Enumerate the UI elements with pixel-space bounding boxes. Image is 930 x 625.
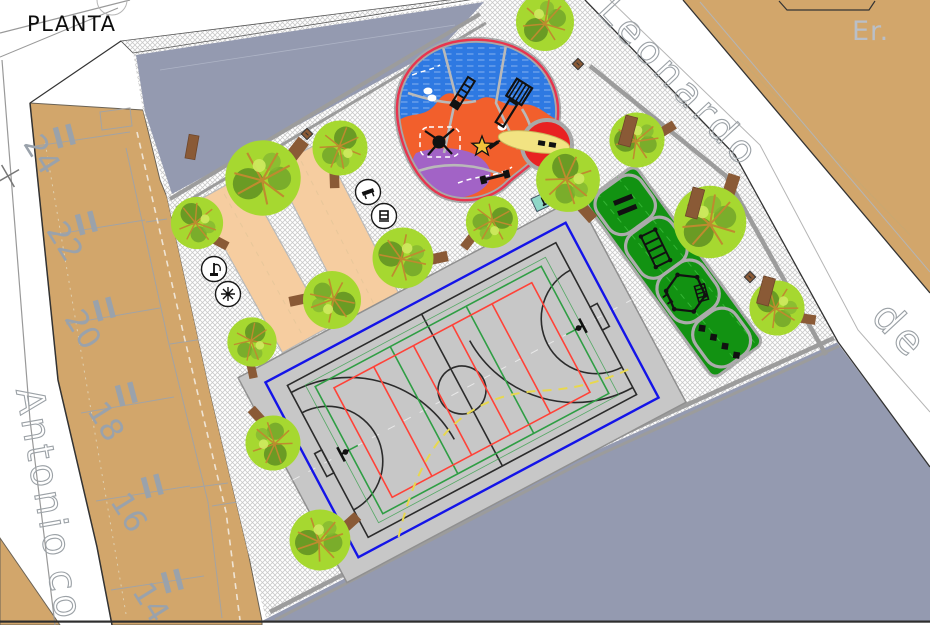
block-label-er: Er. bbox=[852, 16, 889, 47]
drinking-fountain-icon bbox=[202, 257, 227, 282]
spinner-icon bbox=[216, 282, 241, 307]
drawing-title: PLANTA bbox=[27, 12, 116, 36]
site-plan-drawing: PLANTA Leonardo de Antonio co Er. 24 22 … bbox=[0, 0, 930, 625]
street-name-co: co bbox=[39, 566, 91, 625]
drawing-frame-line bbox=[0, 621, 930, 623]
site-plan-canvas: PLANTA Leonardo de Antonio co Er. 24 22 … bbox=[0, 0, 930, 625]
bench-icon bbox=[356, 180, 381, 205]
litter-bin-icon bbox=[372, 204, 397, 229]
